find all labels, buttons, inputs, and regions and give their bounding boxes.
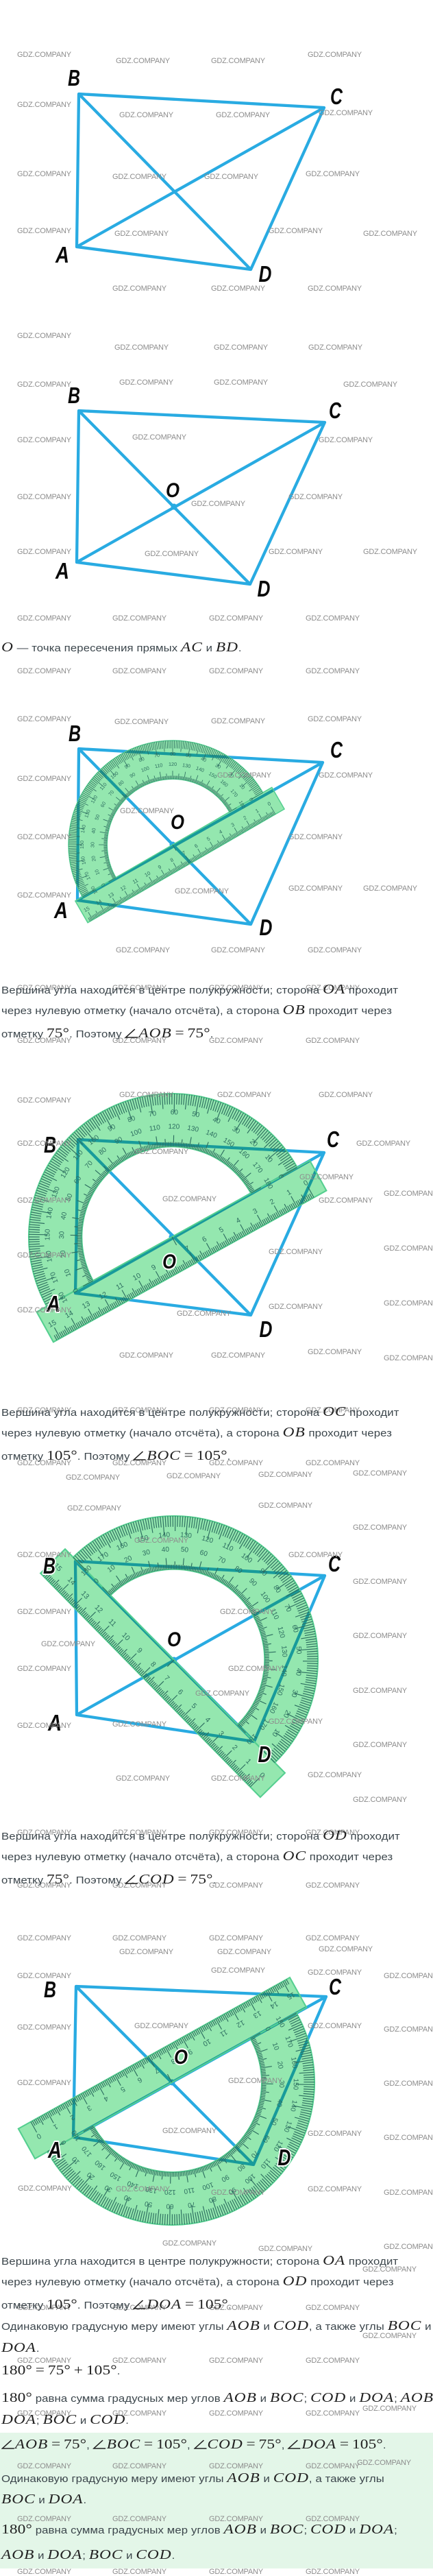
svg-text:A: A bbox=[47, 2137, 62, 2163]
svg-text:C: C bbox=[329, 1974, 342, 1999]
svg-text:B: B bbox=[68, 65, 80, 91]
svg-text:D: D bbox=[260, 915, 273, 940]
svg-text:A: A bbox=[53, 898, 68, 923]
svg-text:C: C bbox=[327, 1127, 340, 1152]
svg-text:A: A bbox=[55, 242, 69, 267]
svg-text:B: B bbox=[44, 1977, 56, 2002]
svg-text:C: C bbox=[330, 737, 343, 762]
svg-text:O: O bbox=[167, 1628, 181, 1651]
svg-text:D: D bbox=[278, 2145, 291, 2170]
svg-text:D: D bbox=[258, 1742, 271, 1767]
svg-text:D: D bbox=[260, 1316, 273, 1342]
svg-text:B: B bbox=[69, 721, 81, 746]
svg-text:D: D bbox=[258, 576, 271, 601]
svg-text:O: O bbox=[166, 479, 180, 502]
svg-text:O: O bbox=[162, 1251, 176, 1273]
svg-text:O: O bbox=[174, 2046, 188, 2069]
svg-text:C: C bbox=[330, 84, 343, 109]
svg-text:D: D bbox=[259, 261, 272, 287]
svg-text:A: A bbox=[55, 558, 69, 583]
svg-text:C: C bbox=[329, 398, 342, 423]
